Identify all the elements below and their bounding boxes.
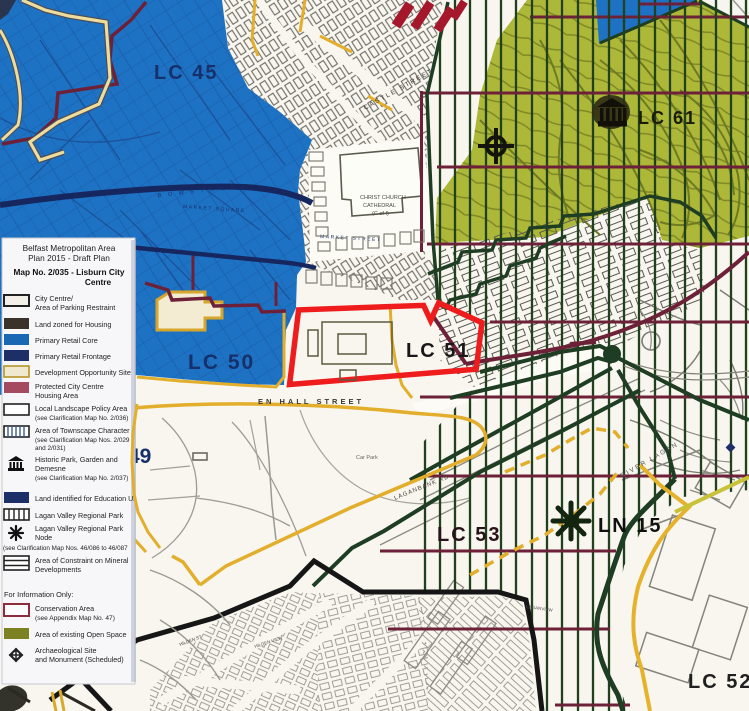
svg-text:Primary Retail Core: Primary Retail Core	[35, 336, 98, 345]
svg-text:Area of Townscape Character: Area of Townscape Character	[35, 426, 130, 435]
svg-text:Area of existing Open Space: Area of existing Open Space	[35, 630, 127, 639]
svg-text:Node: Node	[35, 533, 52, 542]
svg-text:(see Appendix Map No. 47): (see Appendix Map No. 47)	[35, 615, 115, 622]
svg-text:Conservation Area: Conservation Area	[35, 604, 94, 613]
svg-text:(see Clarification Map Nos. 46: (see Clarification Map Nos. 46/086 to 46…	[3, 545, 128, 552]
svg-text:Historic Park, Garden and: Historic Park, Garden and	[35, 455, 118, 464]
svg-text:LC 61: LC 61	[638, 108, 697, 128]
svg-text:EN HALL STREET: EN HALL STREET	[258, 397, 364, 406]
svg-text:(see Clarification Map Nos. 2/: (see Clarification Map Nos. 2/029	[35, 437, 130, 444]
svg-text:Car Park: Car Park	[356, 455, 378, 461]
svg-text:Map No. 2/035 - Lisburn City: Map No. 2/035 - Lisburn City	[13, 267, 124, 277]
svg-text:Lagan Valley Regional Park: Lagan Valley Regional Park	[35, 524, 124, 533]
svg-text:Archaeological Site: Archaeological Site	[35, 646, 97, 655]
svg-text:LC 52: LC 52	[688, 671, 749, 693]
svg-text:CATHEDRAL: CATHEDRAL	[363, 203, 396, 209]
svg-text:LN 15: LN 15	[598, 515, 662, 537]
svg-text:Belfast Metropolitan Area: Belfast Metropolitan Area	[23, 243, 116, 253]
svg-text:CHRIST CHURCH: CHRIST CHURCH	[360, 195, 406, 201]
svg-text:City Centre/: City Centre/	[35, 294, 73, 303]
svg-text:Lagan Valley Regional Park: Lagan Valley Regional Park	[35, 511, 124, 520]
svg-text:(see Clarification Map No. 2/0: (see Clarification Map No. 2/036)	[35, 415, 128, 422]
svg-text:Primary Retail Frontage: Primary Retail Frontage	[35, 352, 111, 361]
svg-text:Plan 2015 - Draft Plan: Plan 2015 - Draft Plan	[28, 253, 110, 263]
svg-text:LC 45: LC 45	[154, 62, 218, 84]
svg-text:Protected City Centre: Protected City Centre	[35, 382, 104, 391]
svg-text:For Information Only:: For Information Only:	[4, 590, 73, 599]
svg-text:Development Opportunity Site: Development Opportunity Site	[35, 368, 131, 377]
svg-text:and Monument (Scheduled): and Monument (Scheduled)	[35, 655, 124, 664]
svg-text:Land zoned for Housing: Land zoned for Housing	[35, 320, 111, 329]
svg-text:LC 53: LC 53	[437, 524, 501, 546]
svg-text:Developments: Developments	[35, 565, 81, 574]
svg-text:Housing Area: Housing Area	[35, 391, 78, 400]
svg-text:Demesne: Demesne	[35, 464, 66, 473]
svg-text:(see Clarification Map No. 2/0: (see Clarification Map No. 2/037)	[35, 475, 128, 482]
svg-text:LC 51: LC 51	[406, 340, 470, 362]
svg-text:Local Landscape Policy Area: Local Landscape Policy Area	[35, 404, 127, 413]
svg-text:LC 50: LC 50	[188, 351, 255, 374]
svg-text:Land identified for Education: Land identified for Education Us	[35, 494, 137, 503]
svg-text:Centre: Centre	[85, 277, 112, 287]
svg-text:and 2/031): and 2/031)	[35, 445, 66, 452]
svg-text:Area of Constraint on Mineral: Area of Constraint on Mineral	[35, 556, 129, 565]
svg-text:Area of Parking Restraint: Area of Parking Restraint	[35, 303, 115, 312]
svg-text:(C of I): (C of I)	[372, 211, 389, 217]
